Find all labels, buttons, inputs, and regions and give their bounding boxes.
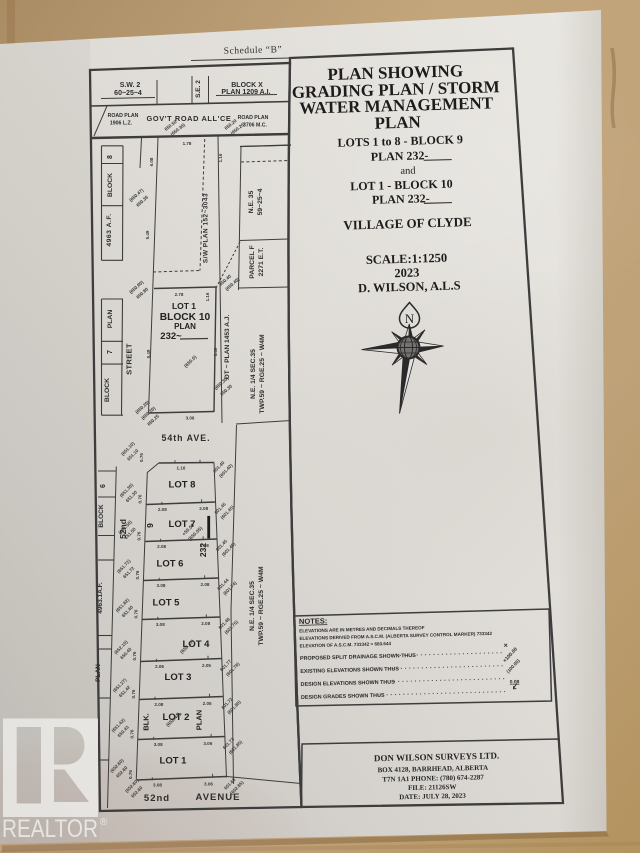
svg-text:FILE: 21126SW: FILE: 21126SW bbox=[408, 783, 457, 792]
svg-text:®: ® bbox=[100, 817, 108, 828]
svg-text:LOT 8: LOT 8 bbox=[169, 480, 196, 491]
svg-text:2.08: 2.08 bbox=[158, 507, 167, 512]
svg-text:PLAN 232-: PLAN 232- bbox=[372, 191, 430, 207]
svg-text:STREET: STREET bbox=[125, 343, 134, 375]
svg-text:2.78: 2.78 bbox=[175, 292, 184, 297]
svg-text:2.08: 2.08 bbox=[200, 543, 209, 548]
svg-text:4963 A.F.: 4963 A.F. bbox=[106, 213, 113, 246]
svg-text:0.76: 0.76 bbox=[132, 651, 137, 660]
svg-text:2.05: 2.05 bbox=[203, 701, 212, 706]
svg-text:1.16: 1.16 bbox=[177, 466, 186, 471]
svg-text:REALTOR: REALTOR bbox=[2, 815, 98, 843]
svg-text:PARCEL F: PARCEL F bbox=[249, 245, 256, 278]
svg-text:PLAN: PLAN bbox=[374, 112, 422, 132]
svg-text:3706 M.C.: 3706 M.C. bbox=[243, 123, 267, 129]
svg-text:60~25~4: 60~25~4 bbox=[114, 90, 142, 97]
svg-text:2.08: 2.08 bbox=[199, 506, 208, 511]
svg-text:BLOCK X: BLOCK X bbox=[231, 82, 263, 89]
svg-text:2.08: 2.08 bbox=[154, 702, 163, 707]
svg-text:3.06: 3.06 bbox=[186, 416, 195, 421]
svg-text:D. WILSON, A.L.S: D. WILSON, A.L.S bbox=[358, 278, 461, 295]
svg-text:54th AVE.: 54th AVE. bbox=[161, 433, 210, 443]
svg-text:6.08: 6.08 bbox=[149, 157, 154, 166]
svg-text:TWP.59 ~ RGE.25 ~ W4M: TWP.59 ~ RGE.25 ~ W4M bbox=[259, 334, 266, 414]
svg-text:3.06: 3.06 bbox=[204, 782, 213, 787]
svg-text:BLK.: BLK. bbox=[142, 713, 151, 731]
svg-text:0.76: 0.76 bbox=[139, 453, 144, 462]
svg-text:AVENUE: AVENUE bbox=[196, 792, 241, 803]
svg-text:1.16: 1.16 bbox=[205, 292, 210, 301]
svg-text:3.08: 3.08 bbox=[154, 742, 163, 747]
svg-text:2.08: 2.08 bbox=[157, 544, 166, 549]
svg-text:0.76: 0.76 bbox=[136, 531, 141, 540]
svg-text:52nd: 52nd bbox=[144, 793, 170, 804]
svg-text:3.06: 3.06 bbox=[203, 741, 212, 746]
svg-text:NOTES:: NOTES: bbox=[299, 616, 328, 626]
svg-text:1.16: 1.16 bbox=[218, 153, 223, 162]
svg-text:2.05: 2.05 bbox=[202, 663, 211, 668]
svg-text:S.E. 2: S.E. 2 bbox=[195, 80, 202, 98]
svg-text:9: 9 bbox=[145, 523, 155, 528]
svg-text:PLAN: PLAN bbox=[174, 322, 196, 331]
svg-text:TWP.59 ~ RGE.25 ~ W4M: TWP.59 ~ RGE.25 ~ W4M bbox=[258, 566, 265, 646]
svg-text:×: × bbox=[504, 643, 508, 650]
svg-text:0.76: 0.76 bbox=[129, 729, 134, 738]
svg-text:ROAD PLAN: ROAD PLAN bbox=[238, 115, 269, 121]
svg-text:BLOCK: BLOCK bbox=[104, 378, 111, 402]
svg-text:0.08: 0.08 bbox=[510, 679, 520, 685]
svg-text:3.08: 3.08 bbox=[157, 583, 166, 588]
svg-text:S.W. 2: S.W. 2 bbox=[120, 82, 141, 89]
svg-text:Schedule “B”: Schedule “B” bbox=[224, 44, 283, 57]
svg-text:PLAN 232-: PLAN 232- bbox=[371, 148, 429, 164]
svg-text:LOT 3: LOT 3 bbox=[165, 672, 192, 683]
svg-text:2023: 2023 bbox=[394, 266, 419, 281]
svg-text:5.49: 5.49 bbox=[145, 230, 150, 239]
svg-text:LOT 5: LOT 5 bbox=[153, 598, 181, 609]
svg-text:1906 L.Z.: 1906 L.Z. bbox=[110, 121, 133, 127]
svg-text:6: 6 bbox=[100, 484, 107, 488]
svg-text:3.08: 3.08 bbox=[153, 783, 162, 788]
svg-text:PLAN: PLAN bbox=[107, 310, 114, 329]
svg-text:0.76: 0.76 bbox=[134, 609, 139, 618]
svg-text:BLOCK: BLOCK bbox=[98, 504, 105, 527]
svg-text:7: 7 bbox=[107, 350, 114, 354]
svg-text:2.08: 2.08 bbox=[201, 621, 210, 626]
svg-text:LOT 1 - BLOCK 10: LOT 1 - BLOCK 10 bbox=[350, 177, 453, 194]
svg-text:BLOCK: BLOCK bbox=[107, 173, 114, 197]
svg-text:4963.1A.F.: 4963.1A.F. bbox=[97, 582, 104, 614]
svg-text:3.08: 3.08 bbox=[156, 622, 165, 627]
svg-text:2.08: 2.08 bbox=[201, 582, 210, 587]
svg-text:N.E. 1/4 SEC.35: N.E. 1/4 SEC.35 bbox=[250, 349, 257, 399]
svg-text:LOT 1: LOT 1 bbox=[160, 756, 188, 767]
svg-text:8: 8 bbox=[107, 155, 114, 159]
svg-text:5.49: 5.49 bbox=[213, 347, 218, 356]
svg-text:2271 E.T.: 2271 E.T. bbox=[258, 248, 265, 277]
svg-text:N.E. 35: N.E. 35 bbox=[248, 190, 255, 213]
svg-text:DATE: JULY 28, 2023: DATE: JULY 28, 2023 bbox=[399, 792, 466, 802]
svg-text:OT ~ PLAN 1453 A.J.: OT ~ PLAN 1453 A.J. bbox=[224, 314, 231, 379]
svg-text:S/W PLAN 152~3043: S/W PLAN 152~3043 bbox=[203, 193, 210, 263]
svg-text:1.78: 1.78 bbox=[183, 141, 192, 146]
svg-text:LOT 1: LOT 1 bbox=[172, 301, 196, 311]
svg-text:0.76: 0.76 bbox=[128, 770, 133, 779]
svg-text:N.E. 1/4 SEC.35: N.E. 1/4 SEC.35 bbox=[249, 581, 256, 631]
svg-text:GOV'T ROAD ALL'CE: GOV'T ROAD ALL'CE bbox=[147, 114, 232, 123]
svg-text:PLAN: PLAN bbox=[195, 710, 204, 730]
svg-text:0.76: 0.76 bbox=[131, 689, 136, 698]
svg-text:SCALE:1:1250: SCALE:1:1250 bbox=[366, 251, 448, 267]
svg-text:0.76: 0.76 bbox=[138, 494, 143, 503]
svg-text:0.76: 0.76 bbox=[135, 570, 140, 579]
svg-text:59~25~4: 59~25~4 bbox=[257, 188, 264, 215]
svg-text:N: N bbox=[405, 311, 415, 326]
svg-text:52nd: 52nd bbox=[118, 519, 128, 539]
svg-text:232~: 232~ bbox=[160, 331, 182, 342]
svg-text:and: and bbox=[400, 166, 416, 177]
svg-text:ROAD PLAN: ROAD PLAN bbox=[108, 113, 139, 119]
svg-text:LOT 6: LOT 6 bbox=[157, 559, 184, 570]
svg-text:2.06: 2.06 bbox=[155, 664, 164, 669]
svg-text:5.49: 5.49 bbox=[146, 349, 151, 358]
svg-text:PLAN: PLAN bbox=[95, 664, 102, 682]
